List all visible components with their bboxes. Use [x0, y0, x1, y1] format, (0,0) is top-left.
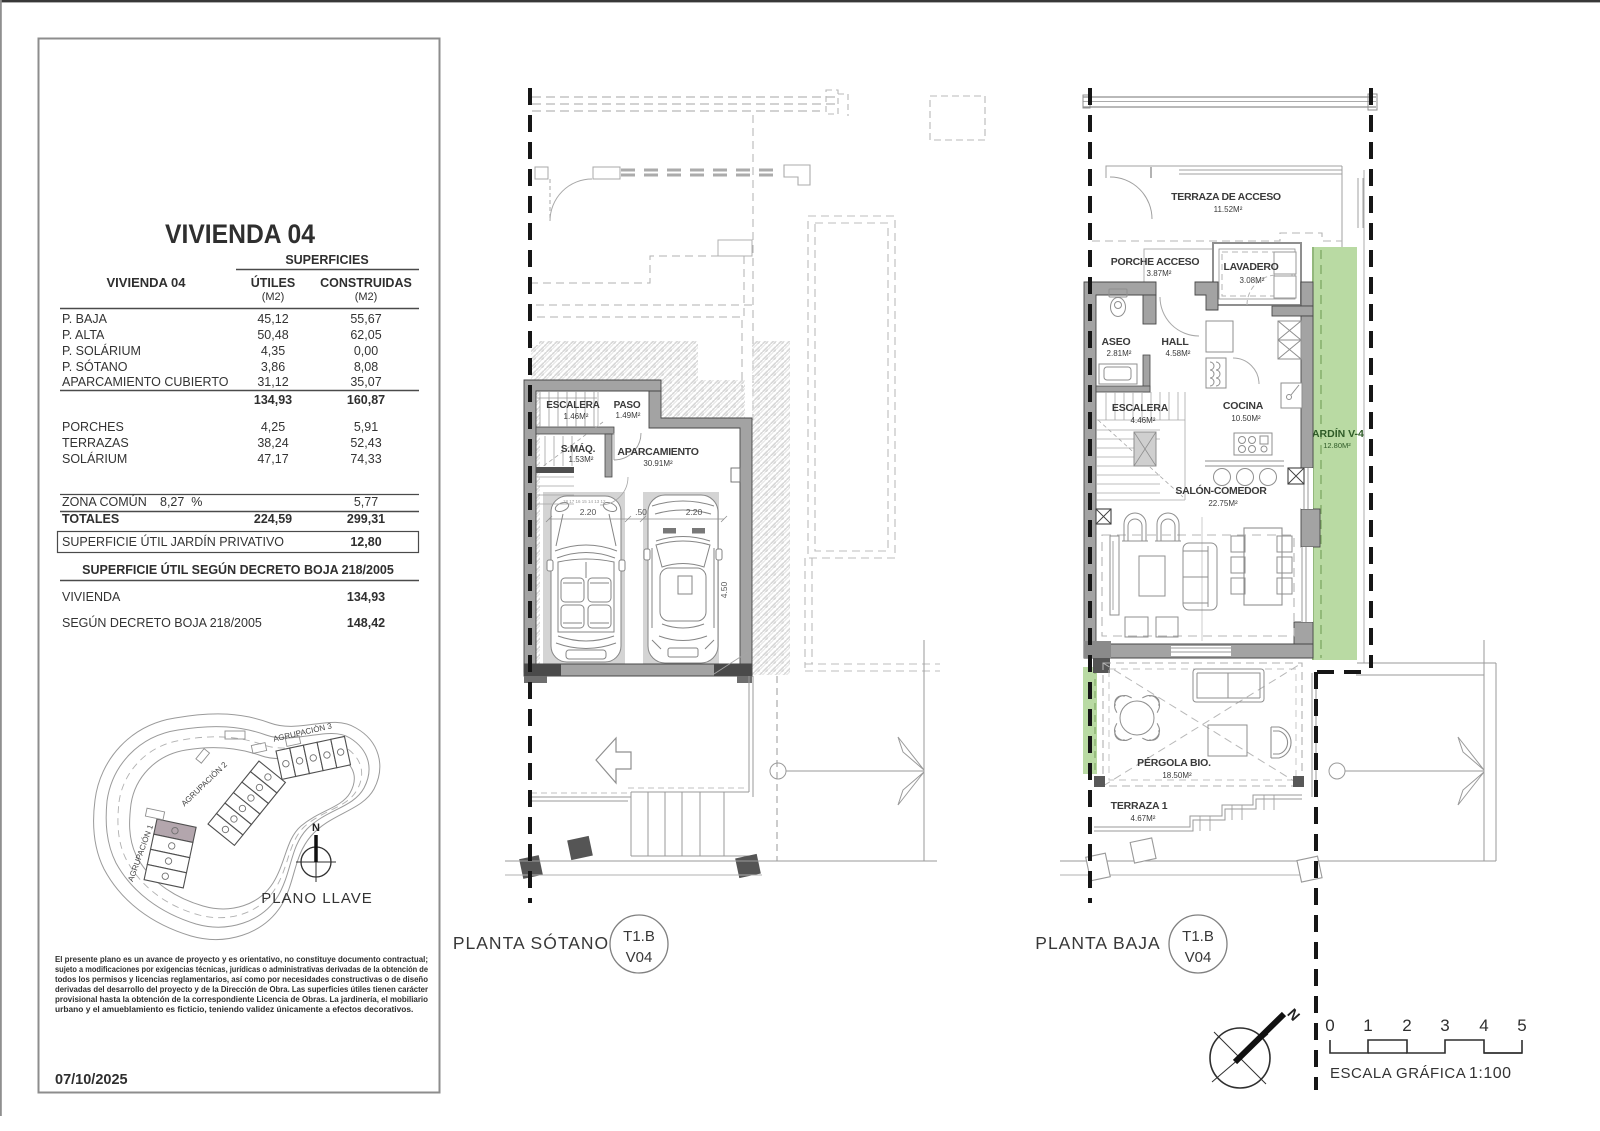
svg-text:1.53M²: 1.53M²	[569, 455, 594, 464]
svg-text:134,93: 134,93	[347, 590, 385, 604]
svg-text:.50: .50	[635, 507, 647, 517]
svg-text:PLANO LLAVE: PLANO LLAVE	[261, 890, 373, 907]
svg-text:urbano y el amueblamiento es f: urbano y el amueblamiento es ficticio, t…	[55, 1004, 413, 1014]
svg-text:55,67: 55,67	[350, 312, 381, 326]
svg-text:38,24: 38,24	[257, 436, 288, 450]
svg-text:12.80M²: 12.80M²	[1323, 441, 1351, 450]
svg-text:18.50M²: 18.50M²	[1162, 771, 1192, 780]
svg-text:VIVIENDA 04: VIVIENDA 04	[165, 219, 315, 249]
svg-text:2.20: 2.20	[686, 507, 703, 517]
svg-text:HALL: HALL	[1161, 336, 1189, 348]
svg-text:El presente plano es un avance: El presente plano es un avance de proyec…	[55, 954, 428, 964]
svg-text:APARCAMIENTO CUBIERTO: APARCAMIENTO CUBIERTO	[62, 375, 229, 389]
svg-text:ÚTILES: ÚTILES	[251, 275, 295, 290]
svg-text:4.50: 4.50	[719, 581, 729, 598]
svg-text:12,80: 12,80	[350, 535, 381, 549]
svg-text:LAVADERO: LAVADERO	[1224, 261, 1279, 273]
svg-text:224,59: 224,59	[254, 512, 292, 526]
svg-text:ESCALA GRÁFICA: ESCALA GRÁFICA	[1330, 1065, 1466, 1082]
svg-text:SUPERFICIES: SUPERFICIES	[285, 253, 368, 267]
svg-text:4.46M²: 4.46M²	[1131, 416, 1156, 425]
svg-text:4,35: 4,35	[261, 344, 285, 358]
svg-text:1: 1	[1363, 1016, 1372, 1035]
svg-text:5,77: 5,77	[354, 495, 378, 509]
svg-text:148,42: 148,42	[347, 616, 385, 630]
svg-text:18 17 16 15 14 13 12: 18 17 16 15 14 13 12	[563, 499, 606, 504]
svg-text:PLANTA BAJA: PLANTA BAJA	[1035, 933, 1160, 953]
svg-text:3.08M²: 3.08M²	[1240, 276, 1265, 285]
svg-text:2.81M²: 2.81M²	[1107, 349, 1132, 358]
svg-text:11.52M²: 11.52M²	[1214, 205, 1243, 214]
svg-text:47,17: 47,17	[257, 452, 288, 466]
svg-text:SUPERFICIE ÚTIL JARDÍN PRIVATI: SUPERFICIE ÚTIL JARDÍN PRIVATIVO	[62, 534, 284, 549]
svg-text:5: 5	[1517, 1016, 1526, 1035]
svg-text:74,33: 74,33	[350, 452, 381, 466]
svg-text:SUPERFICIE ÚTIL SEGÚN DECRETO: SUPERFICIE ÚTIL SEGÚN DECRETO BOJA 218/2…	[82, 562, 394, 577]
svg-text:(M2): (M2)	[262, 291, 285, 303]
svg-text:134,93: 134,93	[254, 393, 292, 407]
svg-text:PORCHES: PORCHES	[62, 420, 124, 434]
svg-text:3: 3	[1440, 1016, 1449, 1035]
svg-text:SOLÁRIUM: SOLÁRIUM	[62, 451, 127, 466]
svg-text:4,25: 4,25	[261, 420, 285, 434]
svg-text:VIVIENDA: VIVIENDA	[62, 590, 121, 604]
svg-text:provisional hasta la obtención: provisional hasta la obtención de la cor…	[55, 994, 428, 1004]
svg-text:V04: V04	[1185, 949, 1212, 966]
svg-text:0,00: 0,00	[354, 344, 378, 358]
svg-text:45,12: 45,12	[257, 312, 288, 326]
svg-text:(M2): (M2)	[355, 291, 378, 303]
svg-text:ESCALERA: ESCALERA	[1112, 402, 1169, 414]
svg-text:2.20: 2.20	[580, 507, 597, 517]
svg-text:P. SOLÁRIUM: P. SOLÁRIUM	[62, 343, 141, 358]
svg-text:ZONA COMÚN: ZONA COMÚN	[62, 494, 147, 509]
svg-text:35,07: 35,07	[350, 375, 381, 389]
svg-text:2: 2	[1402, 1016, 1411, 1035]
svg-text:SALÓN-COMEDOR: SALÓN-COMEDOR	[1175, 484, 1267, 497]
svg-text:COCINA: COCINA	[1223, 400, 1264, 412]
svg-text:ASEO: ASEO	[1102, 336, 1131, 348]
svg-text:62,05: 62,05	[350, 328, 381, 342]
svg-text:31,12: 31,12	[257, 375, 288, 389]
svg-text:PLANTA SÓTANO: PLANTA SÓTANO	[453, 932, 609, 953]
svg-text:22.75M²: 22.75M²	[1208, 499, 1238, 508]
svg-text:S.MÁQ.: S.MÁQ.	[561, 442, 596, 455]
svg-text:1.46M²: 1.46M²	[564, 412, 589, 421]
svg-text:TERRAZA DE ACCESO: TERRAZA DE ACCESO	[1171, 191, 1281, 203]
svg-text:52,43: 52,43	[350, 436, 381, 450]
svg-text:10.50M²: 10.50M²	[1231, 414, 1261, 423]
svg-text:50,48: 50,48	[257, 328, 288, 342]
svg-text:T1.B: T1.B	[623, 928, 655, 945]
svg-text:8,27 %: 8,27 %	[160, 495, 202, 509]
svg-text:TOTALES: TOTALES	[62, 512, 119, 526]
svg-text:V04: V04	[626, 949, 653, 966]
svg-text:P. SÓTANO: P. SÓTANO	[62, 359, 128, 374]
svg-text:VIVIENDA 04: VIVIENDA 04	[107, 275, 187, 290]
svg-text:JARDÍN V-4: JARDÍN V-4	[1306, 427, 1364, 440]
svg-text:SEGÚN DECRETO BOJA 218/2005: SEGÚN DECRETO BOJA 218/2005	[62, 615, 262, 630]
svg-text:CONSTRUIDAS: CONSTRUIDAS	[320, 276, 412, 290]
svg-text:derivadas del desarrollo del p: derivadas del desarrollo del proyecto y …	[55, 984, 429, 994]
svg-text:8,08: 8,08	[354, 360, 378, 374]
svg-text:160,87: 160,87	[347, 393, 385, 407]
svg-text:P. ALTA: P. ALTA	[62, 328, 105, 342]
svg-text:todos los permisos y licencias: todos los permisos y licencias reglament…	[55, 974, 428, 984]
svg-text:P. BAJA: P. BAJA	[62, 312, 108, 326]
svg-text:PORCHE ACCESO: PORCHE ACCESO	[1111, 256, 1200, 268]
svg-text:APARCAMIENTO: APARCAMIENTO	[617, 446, 698, 458]
svg-text:1:100: 1:100	[1469, 1065, 1512, 1082]
svg-text:ESCALERA: ESCALERA	[546, 400, 599, 411]
svg-text:4.58M²: 4.58M²	[1166, 349, 1191, 358]
svg-text:TERRAZAS: TERRAZAS	[62, 436, 129, 450]
svg-text:30.91M²: 30.91M²	[643, 459, 673, 468]
svg-text:0: 0	[1325, 1016, 1334, 1035]
svg-text:299,31: 299,31	[347, 512, 385, 526]
svg-text:PASO: PASO	[614, 400, 641, 411]
svg-text:T1.B: T1.B	[1182, 928, 1214, 945]
svg-text:N: N	[312, 822, 320, 834]
svg-text:3.87M²: 3.87M²	[1147, 269, 1172, 278]
svg-text:4: 4	[1479, 1016, 1488, 1035]
svg-text:PÉRGOLA BIO.: PÉRGOLA BIO.	[1137, 756, 1211, 769]
svg-text:07/10/2025: 07/10/2025	[55, 1072, 128, 1088]
svg-text:sujeto a modificaciones por ex: sujeto a modificaciones por exigencias t…	[55, 964, 428, 974]
svg-text:5,91: 5,91	[354, 420, 378, 434]
svg-text:TERRAZA 1: TERRAZA 1	[1111, 800, 1168, 812]
svg-text:1.49M²: 1.49M²	[616, 411, 641, 420]
svg-text:4.67M²: 4.67M²	[1131, 814, 1156, 823]
svg-text:3,86: 3,86	[261, 360, 285, 374]
